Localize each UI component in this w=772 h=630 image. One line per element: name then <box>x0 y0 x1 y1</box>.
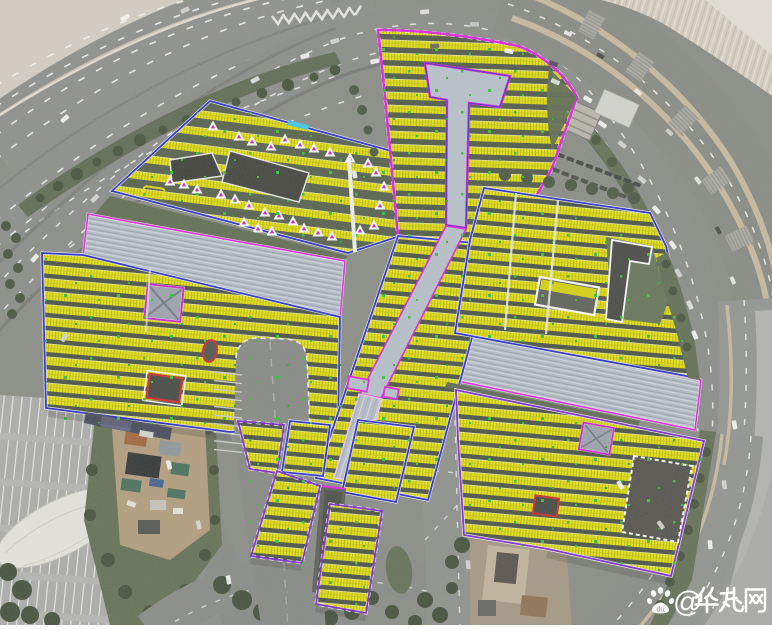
svg-text:du: du <box>656 605 664 614</box>
svg-text:@: @ <box>673 587 702 619</box>
